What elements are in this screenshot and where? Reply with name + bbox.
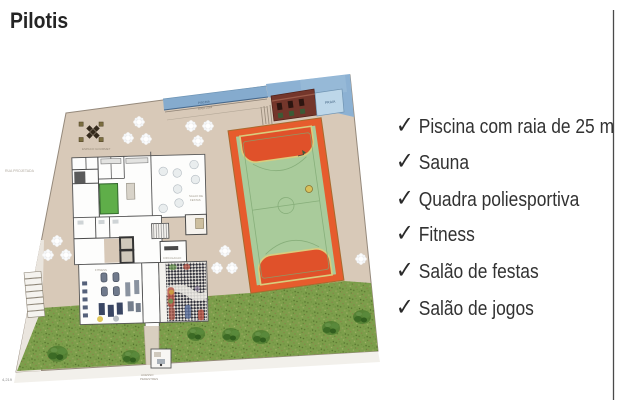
- svg-text:FESTAS: FESTAS: [190, 198, 201, 202]
- svg-text:ESPACO GOURMET: ESPACO GOURMET: [82, 147, 111, 151]
- svg-text:PEDESTRES: PEDESTRES: [140, 377, 158, 381]
- svg-text:CIRCULACAO: CIRCULACAO: [163, 256, 182, 260]
- svg-text:4,219: 4,219: [2, 377, 13, 382]
- svg-text:FITNESS: FITNESS: [95, 268, 107, 272]
- svg-text:RUA PROJETADA: RUA PROJETADA: [5, 169, 35, 173]
